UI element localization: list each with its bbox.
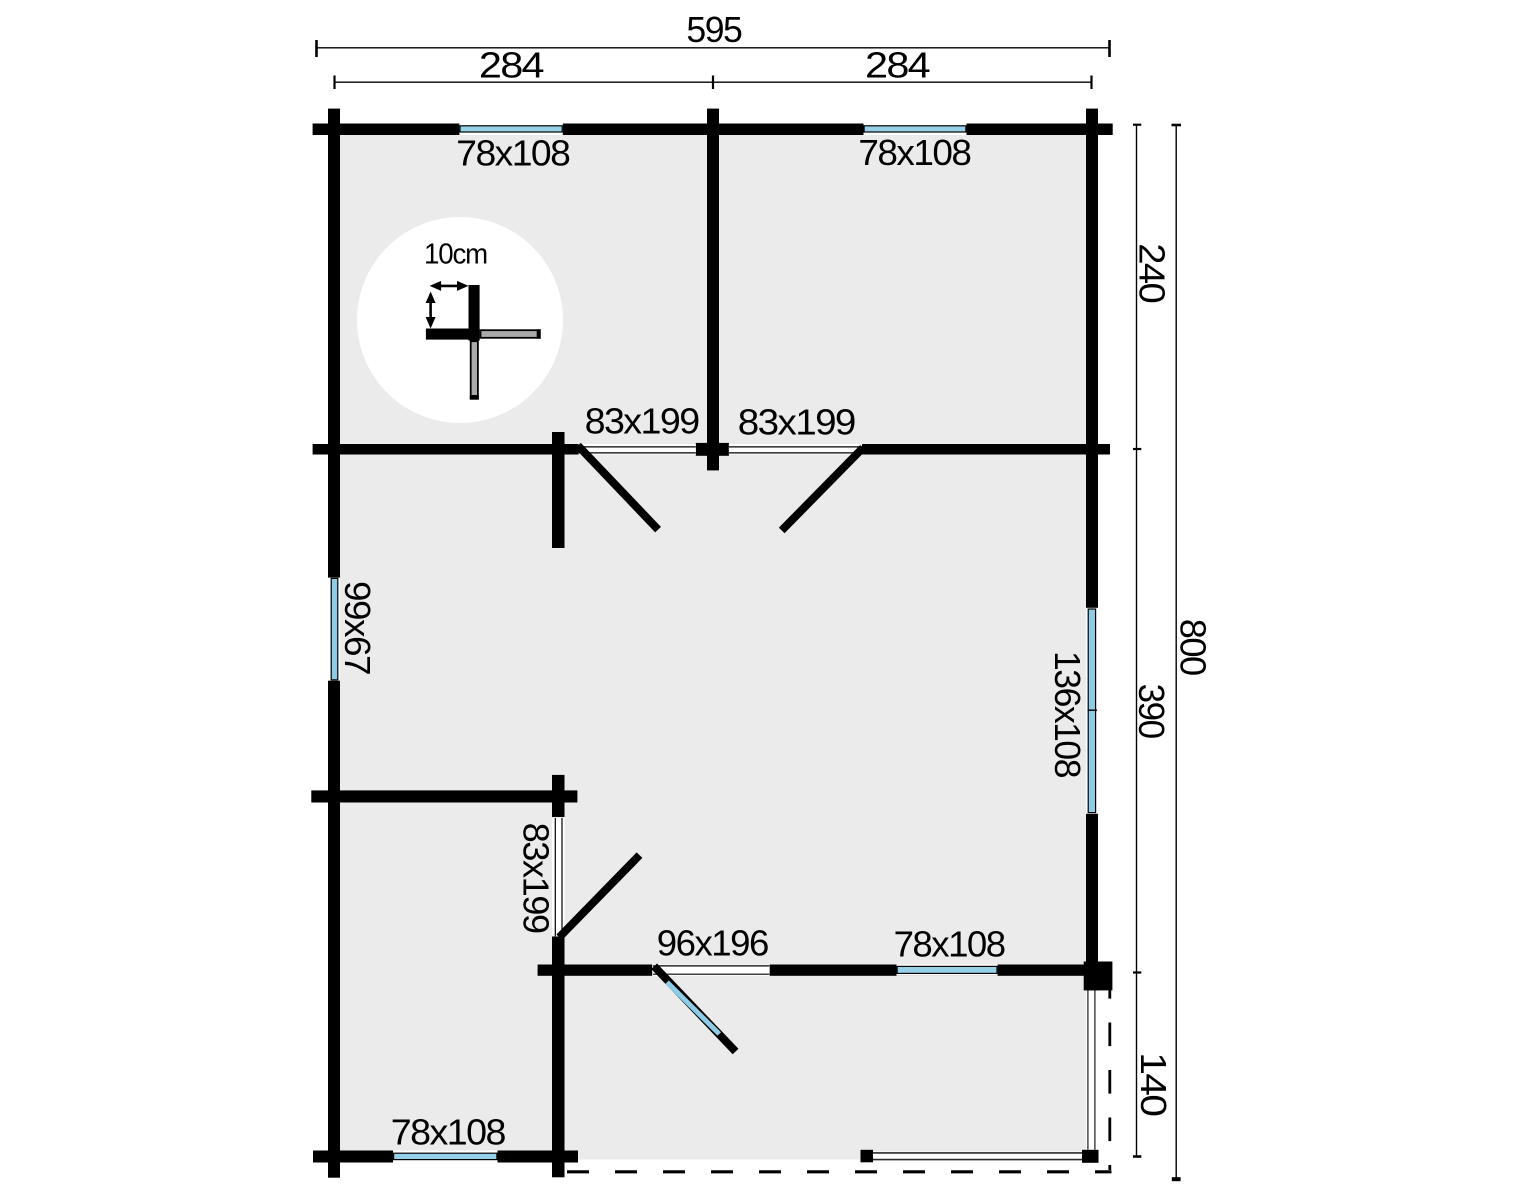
svg-text:800: 800 <box>1173 619 1214 675</box>
svg-text:78x108: 78x108 <box>894 924 1005 965</box>
svg-text:83x199: 83x199 <box>516 823 557 933</box>
svg-text:83x199: 83x199 <box>738 402 856 443</box>
svg-text:136x108: 136x108 <box>1047 651 1088 777</box>
svg-text:390: 390 <box>1131 684 1172 738</box>
svg-text:83x199: 83x199 <box>585 401 699 442</box>
svg-text:595: 595 <box>686 9 741 50</box>
svg-text:78x108: 78x108 <box>858 132 970 173</box>
svg-text:284: 284 <box>865 44 930 85</box>
svg-text:10cm: 10cm <box>424 239 487 271</box>
svg-text:78x108: 78x108 <box>456 133 569 174</box>
svg-text:284: 284 <box>479 44 544 85</box>
svg-text:99x67: 99x67 <box>337 581 378 674</box>
svg-text:140: 140 <box>1133 1052 1174 1116</box>
svg-text:96x196: 96x196 <box>657 923 768 964</box>
svg-text:78x108: 78x108 <box>391 1112 505 1153</box>
svg-text:240: 240 <box>1131 243 1172 302</box>
